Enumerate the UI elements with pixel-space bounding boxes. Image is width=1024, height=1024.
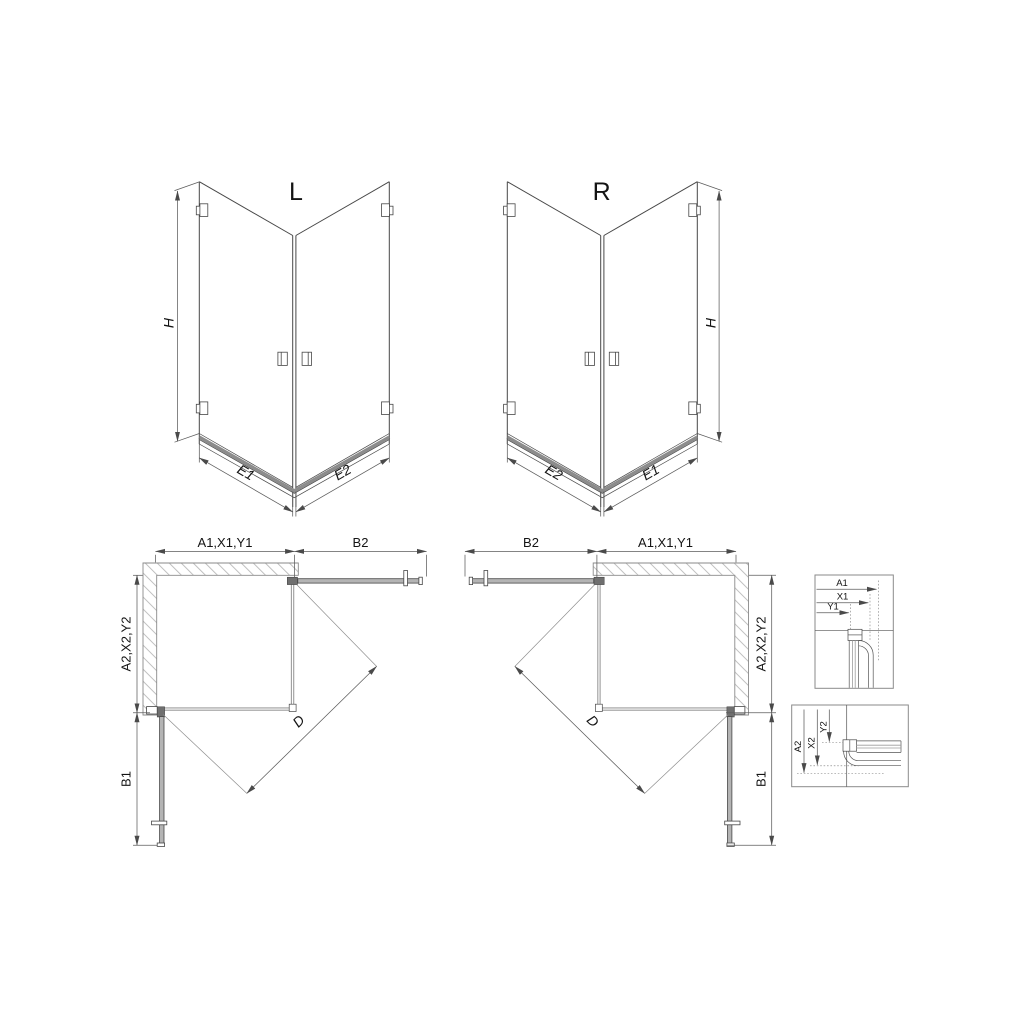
label-side-panel-right-plan: A2,X2,Y2 (754, 617, 769, 672)
iso-view-right: R H E2 E1 (504, 178, 723, 517)
iso-left-title: L (289, 178, 303, 206)
label-entry-left-plan: D (289, 712, 307, 730)
label-entry-right-plan: D (584, 712, 602, 730)
iso-right-title: R (593, 178, 611, 206)
label-side-panel-left-plan: A2,X2,Y2 (119, 617, 134, 672)
label-height-right: H (703, 317, 719, 328)
label-a2: A2 (793, 741, 804, 753)
label-x2: X2 (806, 737, 817, 749)
label-top-door-left-plan: B2 (353, 535, 369, 550)
label-y2: Y2 (818, 721, 829, 733)
label-height-left: H (161, 317, 177, 328)
label-side-door-left-plan: B1 (119, 771, 134, 787)
drawing-page: L H E1 E2 R H E2 E1 A1,X1,Y1 B2 A2,X2,Y2… (0, 0, 1024, 1024)
label-top-panel-right-plan: A1,X1,Y1 (638, 535, 693, 550)
label-top-panel-left-plan: A1,X1,Y1 (198, 535, 253, 550)
label-top-door-right-plan: B2 (523, 535, 539, 550)
wall-section-right-plan (593, 563, 748, 715)
detail-view-depth: A2 X2 Y2 (792, 705, 909, 787)
wall-section-left-plan (143, 563, 298, 715)
plan-view-right: B2 A1,X1,Y1 A2,X2,Y2 B1 D (465, 535, 776, 846)
label-side-door-right-plan: B1 (754, 771, 769, 787)
label-y1: Y1 (827, 602, 839, 613)
label-a1: A1 (836, 578, 848, 589)
detail-view-width: A1 X1 Y1 (815, 575, 893, 688)
plan-view-left: A1,X1,Y1 B2 A2,X2,Y2 B1 D (119, 535, 427, 846)
technical-drawing: L H E1 E2 R H E2 E1 A1,X1,Y1 B2 A2,X2,Y2… (0, 0, 1024, 1024)
iso-view-left: L H E1 E2 (161, 178, 394, 517)
